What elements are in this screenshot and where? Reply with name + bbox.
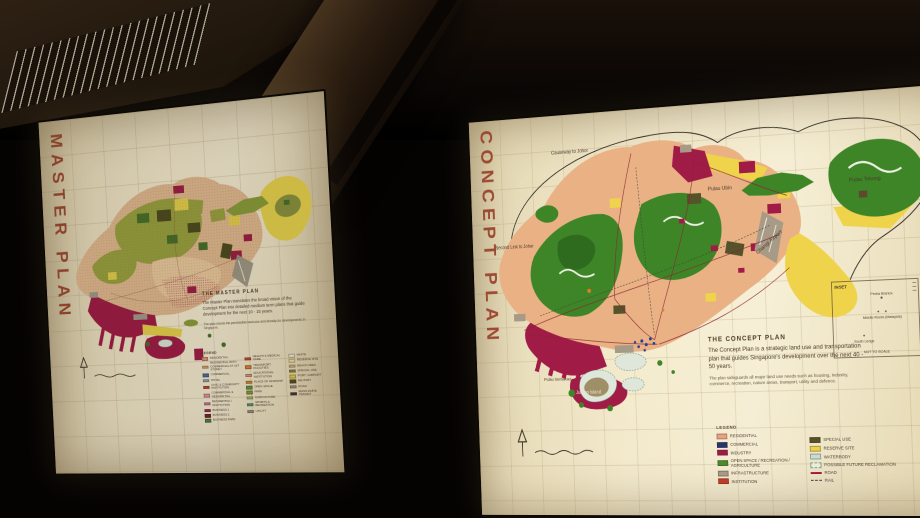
legend-swatch [717, 442, 728, 448]
legend-swatch [811, 480, 822, 481]
legend-items: SPECIAL USERESERVE SITEWATERBODYPOSSIBLE… [809, 436, 896, 485]
legend-swatch [247, 410, 254, 414]
legend-item: INSTITUTION [718, 478, 802, 484]
label-causeway: Causeway to Johor [551, 148, 588, 157]
legend-label: RESIDENTIAL / INSTITUTION [212, 400, 241, 407]
legend-items: WHITERESERVE SITEBEACH AREASPECIAL USEPO… [288, 352, 329, 398]
legend-items: RESIDENTIALRESIDENTIAL WITH COMMERCIAL A… [202, 356, 243, 424]
legend-label: INDUSTRY [730, 450, 751, 455]
legend-swatch [203, 374, 209, 378]
legend-swatch [204, 402, 210, 406]
concept-plan-info: THE CONCEPT PLAN The Concept Plan is a s… [708, 332, 866, 389]
legend-swatch [288, 354, 295, 358]
concept-plan-info-body: The Concept Plan is a strategic land use… [708, 342, 865, 372]
legend-swatch [290, 385, 297, 389]
legend-item: RESERVE SITE [810, 445, 896, 452]
legend-swatch [809, 437, 820, 443]
legend-label: UTILITY [256, 409, 267, 413]
legend-item: WATERBODY [810, 453, 896, 460]
legend-items: RESIDENTIALCOMMERCIALINDUSTRYOPEN SPACE … [717, 432, 803, 486]
legend-swatch [204, 409, 210, 413]
master-plan-lightbox: MASTER PLAN [37, 89, 347, 476]
legend-label: MASS RAPID TRANSIT [299, 389, 329, 397]
legend-label: BUSINESS 1 [212, 408, 229, 412]
legend-swatch [289, 380, 296, 384]
legend-swatch [717, 450, 728, 456]
legend-item: COMMERCIAL [717, 441, 801, 448]
legend-swatch [718, 479, 729, 485]
legend-swatch [247, 403, 254, 407]
legend-swatch [203, 379, 209, 383]
legend-item: POSSIBLE FUTURE RECLAMATION [810, 462, 896, 468]
legend-item: INDUSTRY [717, 449, 801, 456]
legend-swatch [203, 385, 209, 389]
legend-swatch [810, 454, 821, 460]
legend-swatch [246, 396, 253, 400]
legend-label: BUSINESS 2 [213, 414, 230, 418]
legend-item: EDUCATIONAL INSTITUTION [245, 371, 283, 379]
legend-swatch [246, 381, 253, 385]
legend-label: RESERVE SITE [297, 358, 319, 362]
concept-plan-lightbox: CONCEPT PLAN [467, 81, 920, 518]
legend-item: MILITARY [289, 379, 327, 384]
legend-label: MILITARY [298, 379, 311, 383]
legend-swatch [245, 374, 252, 378]
concept-plan-legend: LEGEND RESIDENTIALCOMMERCIALINDUSTRYOPEN… [716, 422, 920, 487]
legend-label: RESERVE SITE [823, 445, 854, 450]
legend-swatch [289, 369, 296, 373]
legend-item: TRANSPORT FACILITIES [245, 363, 283, 371]
master-plan-map [53, 131, 332, 371]
legend-label: RAIL [825, 478, 835, 483]
legend-item: MASS RAPID TRANSIT [290, 389, 329, 397]
concept-plan-legend-col2: SPECIAL USERESERVE SITEWATERBODYPOSSIBLE… [809, 436, 896, 486]
legend-label: HEALTH & MEDICAL CARE [253, 354, 283, 362]
legend-swatch [289, 364, 296, 368]
inset-label-middle-rocks: Middle Rocks (Malaysia) [863, 314, 902, 320]
gallery-scene: MASTER PLAN [0, 0, 920, 518]
legend-swatch [717, 434, 728, 440]
legend-item: RESIDENTIAL / INSTITUTION [204, 400, 242, 408]
legend-swatch [245, 365, 252, 369]
legend-item: INFRASTRUCTURE [718, 470, 802, 476]
master-plan-legend-col3: WHITERESERVE SITEBEACH AREASPECIAL USEPO… [288, 346, 330, 422]
legend-label: WATERBODY [824, 454, 851, 459]
legend-swatch [244, 357, 251, 361]
legend-swatch [205, 419, 211, 423]
inset-label-pedra-branca: Pedra Branca [870, 291, 892, 296]
legend-item: COMMERCIAL & RESIDENTIAL [203, 391, 241, 399]
inset-footer: NOT TO SCALE [864, 349, 891, 354]
legend-heading: LEGEND [201, 350, 238, 355]
legend-label: PARK [255, 391, 263, 395]
legend-swatch [204, 394, 210, 398]
legend-swatch [246, 386, 253, 390]
legend-item: HEALTH & MEDICAL CARE [244, 354, 282, 362]
legend-item: RESIDENTIAL WITH COMMERCIAL AT 1ST STORE… [202, 361, 240, 372]
legend-swatch [811, 472, 822, 474]
legend-swatch [810, 445, 821, 451]
legend-label: COMMERCIAL [730, 442, 758, 447]
legend-label: AGRICULTURE [255, 395, 276, 399]
legend-label: BUSINESS PARK [213, 419, 236, 423]
legend-swatch [810, 462, 821, 468]
master-plan-info-body: The Master Plan translates the broad vis… [202, 295, 307, 318]
label-jurong-island: Jurong Island [576, 389, 602, 395]
legend-heading: LEGEND [716, 425, 800, 431]
legend-label: COMMERCIAL [211, 373, 230, 377]
legend-item: SPECIAL USE [809, 436, 895, 443]
legend-label: POSSIBLE FUTURE RECLAMATION [824, 462, 896, 468]
legend-item: RESIDENTIAL [717, 432, 801, 439]
legend-item: BUSINESS PARK [205, 418, 242, 422]
legend-label: CIVIC & COMMUNITY INSTITUTION [211, 383, 240, 391]
master-plan-legend-col1: LEGEND RESIDENTIALRESIDENTIAL WITH COMME… [201, 350, 242, 424]
legend-label: RESIDENTIAL [730, 434, 757, 439]
label-pulau-semakau: Pulau Semakau [544, 376, 571, 382]
legend-label: COMMERCIAL & RESIDENTIAL [212, 391, 241, 398]
legend-item: COMMERCIAL [203, 373, 240, 378]
legend-label: PORT / AIRPORT [298, 374, 322, 378]
legend-label: TRANSPORT FACILITIES [253, 363, 283, 371]
legend-item: SPORTS & RECREATION [247, 400, 285, 408]
legend-item: OPEN SPACE / RECREATION / AGRICULTURE [717, 457, 801, 468]
legend-swatch [718, 470, 729, 476]
legend-label: INFRASTRUCTURE [731, 471, 769, 476]
legend-swatch [246, 391, 253, 395]
legend-item: OPEN SPACE [246, 385, 284, 390]
legend-items: HEALTH & MEDICAL CARETRANSPORT FACILITIE… [244, 354, 285, 415]
legend-label: INSTITUTION [731, 479, 757, 484]
inset-title: INSET [834, 284, 847, 290]
legend-swatch [205, 414, 211, 418]
legend-item: UTILITY [247, 409, 285, 413]
master-plan-north-arrow [72, 352, 150, 387]
legend-label: RESIDENTIAL WITH COMMERCIAL AT 1ST STORE… [210, 361, 240, 372]
legend-item: ROAD [811, 470, 897, 476]
legend-item: CIVIC & COMMUNITY INSTITUTION [203, 383, 241, 391]
master-map-tekong-island [258, 174, 313, 242]
legend-swatch [717, 460, 728, 466]
legend-swatch [288, 359, 295, 363]
legend-label: OPEN SPACE / RECREATION / AGRICULTURE [731, 457, 802, 467]
legend-label: HOTEL [211, 378, 221, 382]
concept-plan-north-arrow [506, 424, 607, 466]
legend-swatch [202, 365, 208, 369]
legend-swatch [289, 375, 296, 379]
legend-label: OPEN SPACE [254, 385, 273, 389]
legend-item: PARK [246, 390, 284, 395]
legend-label: SPORTS & RECREATION [255, 400, 285, 407]
legend-label: ROAD [824, 470, 836, 475]
legend-item: RAIL [811, 478, 897, 483]
legend-swatch [290, 392, 297, 396]
master-plan-legend: LEGEND RESIDENTIALRESIDENTIAL WITH COMME… [201, 346, 330, 424]
legend-label: SPECIAL USE [823, 437, 851, 442]
legend-label: EDUCATIONAL INSTITUTION [254, 371, 284, 379]
legend-label: ROAD [298, 385, 307, 389]
master-plan-info: THE MASTER PLAN The Master Plan translat… [202, 286, 308, 331]
legend-item: RESERVE SITE [288, 358, 326, 363]
legend-swatch [202, 357, 208, 361]
concept-plan-legend-col1: LEGEND RESIDENTIALCOMMERCIALINDUSTRYOPEN… [716, 425, 802, 487]
master-plan-legend-col2: HEALTH & MEDICAL CARETRANSPORT FACILITIE… [244, 348, 286, 423]
legend-label: WHITE [297, 353, 307, 357]
